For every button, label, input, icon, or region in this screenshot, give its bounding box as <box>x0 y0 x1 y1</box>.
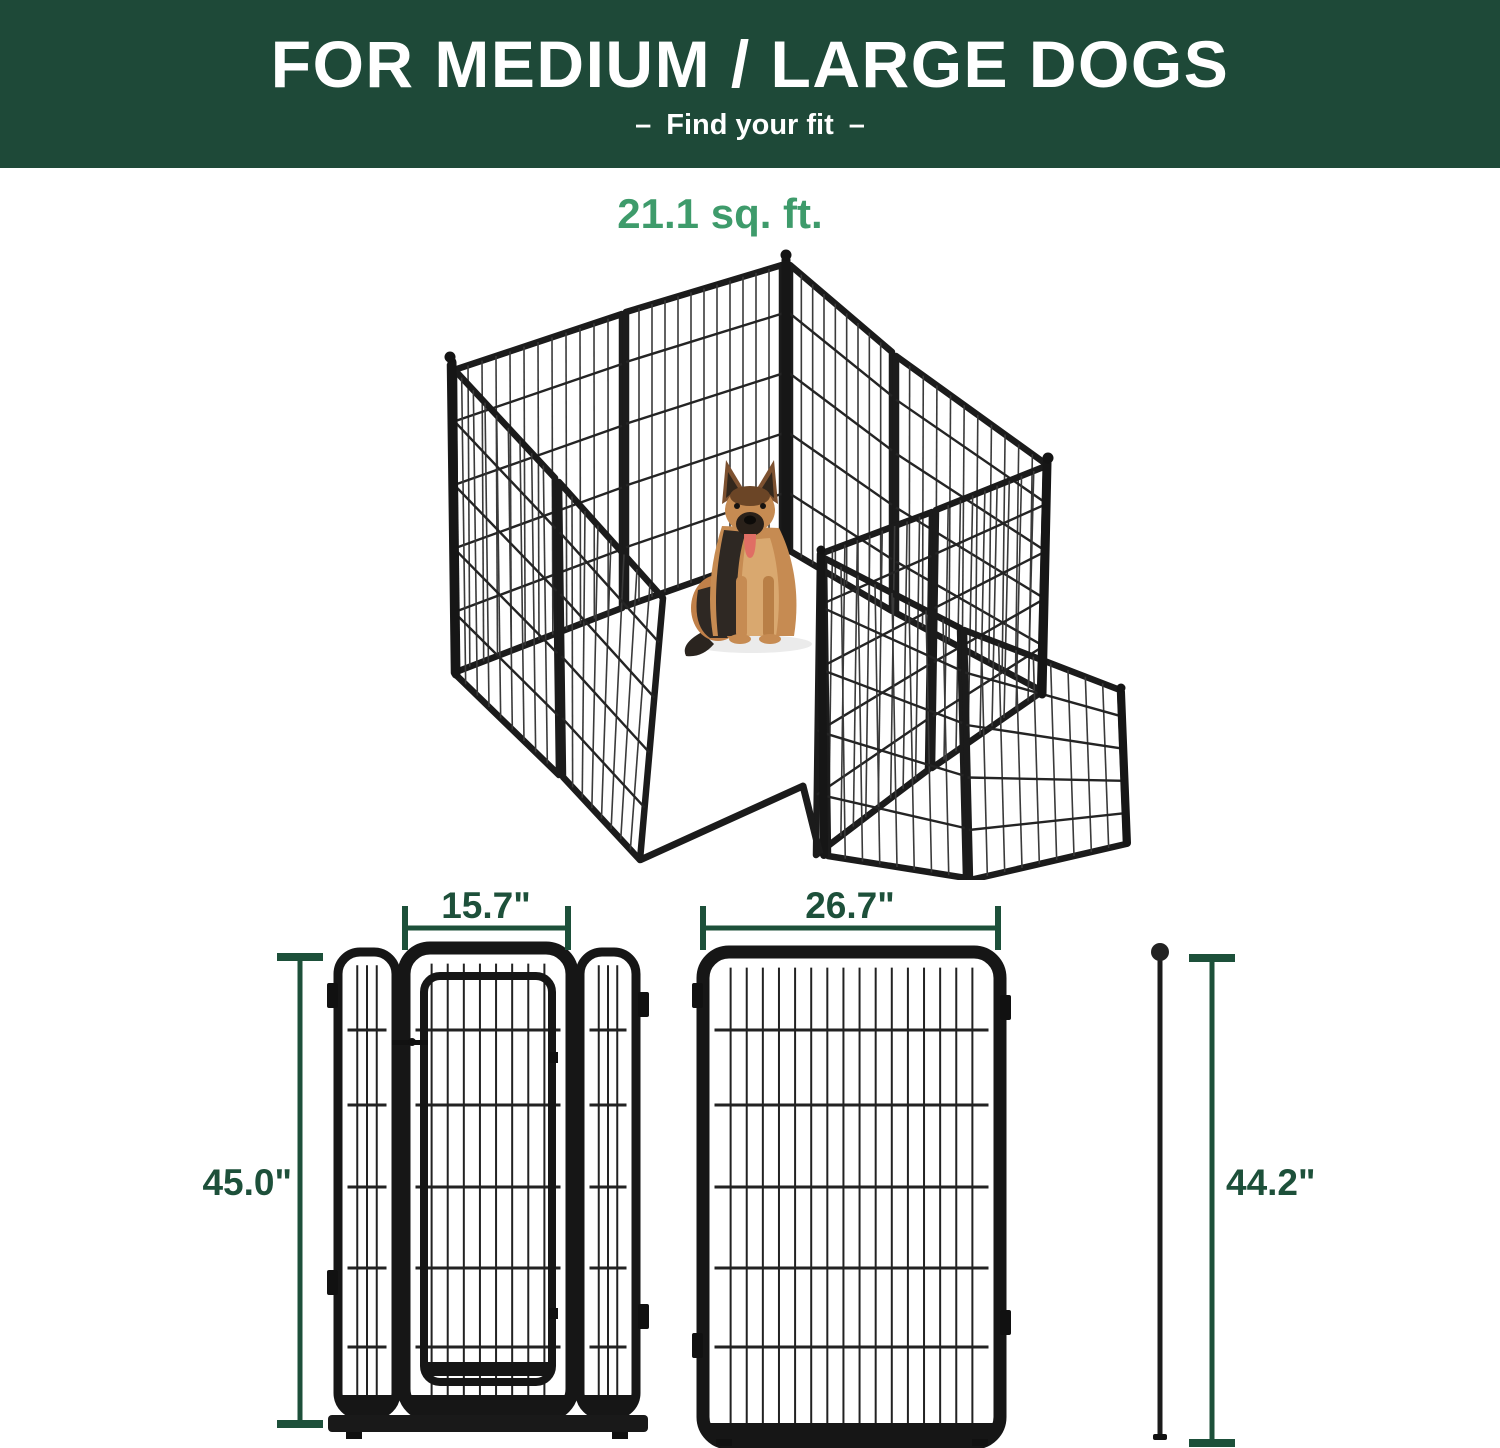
connector-height-label: 44.2" <box>1226 1162 1316 1203</box>
panel-height-label: 45.0" <box>202 1162 292 1203</box>
banner-subtitle-text: Find your fit <box>666 111 834 140</box>
dimension-connector-height: 44.2" <box>1189 958 1316 1443</box>
front-sill-rail <box>640 786 820 860</box>
playpen-illustration <box>380 240 1180 880</box>
panel-width-label: 26.7" <box>805 885 895 926</box>
dimension-diagram: 15.7" 26.7" 45.0" 44.2" <box>0 880 1500 1448</box>
header-banner: FOR MEDIUM / LARGE DOGS – Find your fit … <box>0 0 1500 168</box>
banner-subtitle: – Find your fit – <box>620 111 880 140</box>
diagram-panels <box>327 948 1011 1446</box>
dog-nose <box>744 516 756 525</box>
door-width-label: 15.7" <box>441 885 531 926</box>
dash-left: – <box>635 111 651 140</box>
diagram-connector-rod <box>1151 943 1169 1440</box>
area-label: 21.1 sq. ft. <box>0 190 1440 238</box>
dash-right: – <box>849 111 865 140</box>
banner-title: FOR MEDIUM / LARGE DOGS <box>271 31 1230 97</box>
dimension-panel-width: 26.7" <box>703 885 998 950</box>
dimension-panel-height: 45.0" <box>202 957 323 1424</box>
product-infographic: FOR MEDIUM / LARGE DOGS – Find your fit … <box>0 0 1500 1448</box>
dimension-door-width: 15.7" <box>405 885 568 950</box>
